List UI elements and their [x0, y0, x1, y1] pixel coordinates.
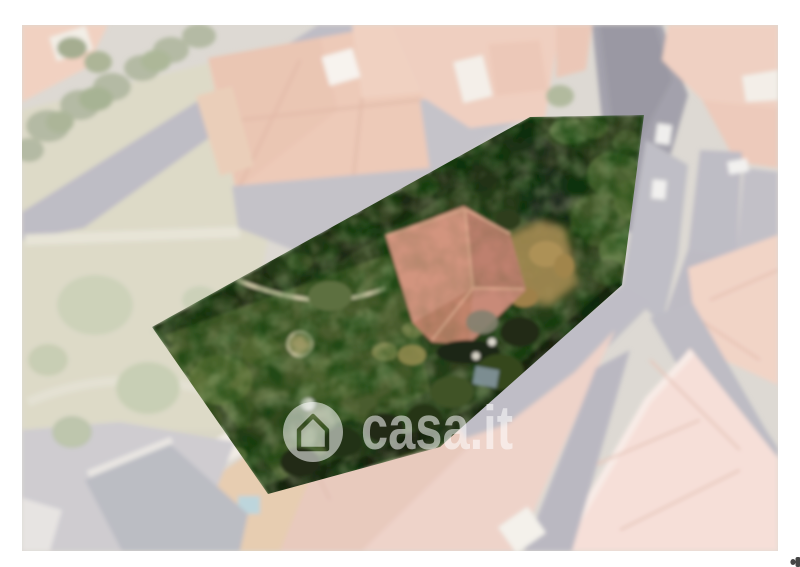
- svg-text:casa.it: casa.it: [361, 394, 513, 463]
